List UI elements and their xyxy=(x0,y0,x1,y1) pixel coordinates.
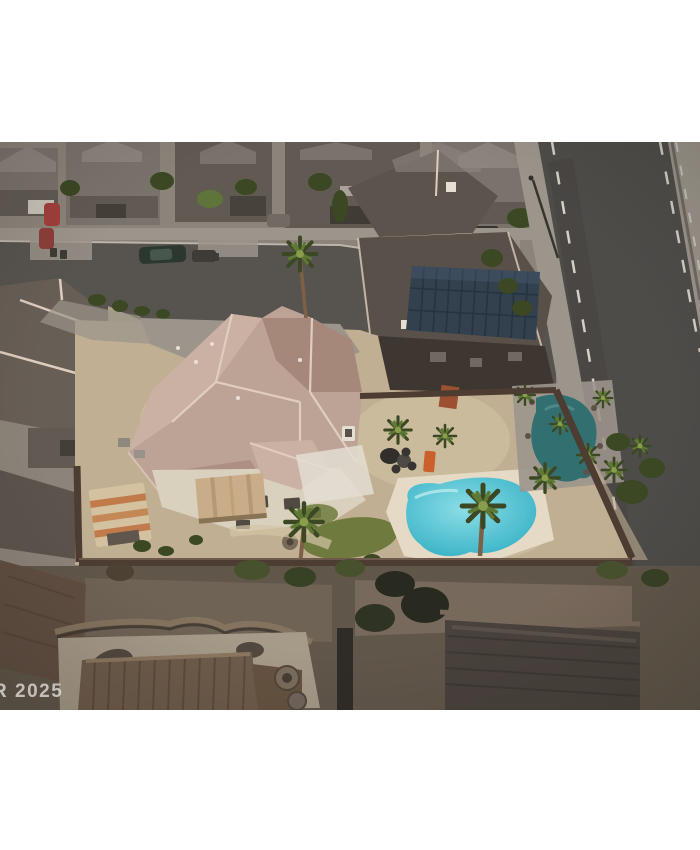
page: R 2025 xyxy=(0,0,700,850)
aerial-property-photo: R 2025 xyxy=(0,142,700,710)
photo-scene: R 2025 xyxy=(0,142,700,710)
color-cast xyxy=(0,142,700,710)
photo-date-watermark: R 2025 xyxy=(0,681,63,702)
